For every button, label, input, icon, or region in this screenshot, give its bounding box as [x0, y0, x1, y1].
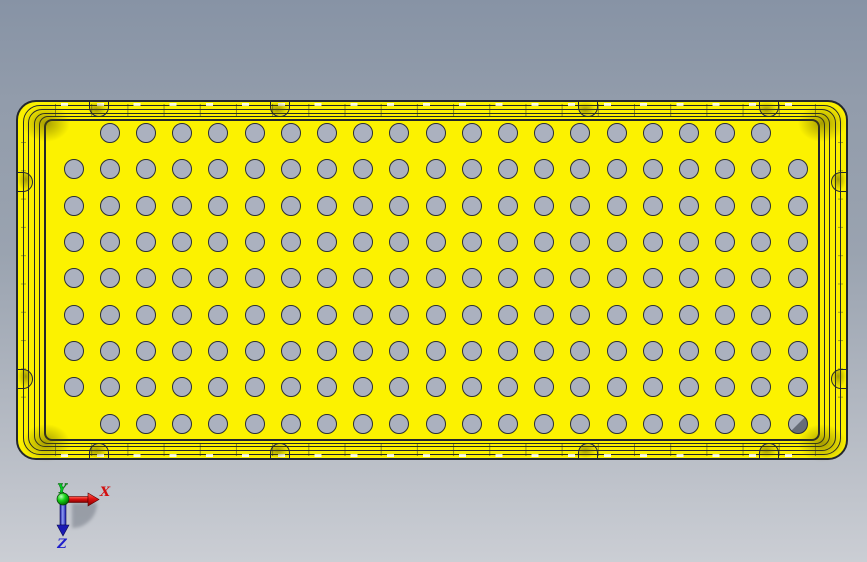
hole[interactable] [353, 414, 373, 434]
hole[interactable] [426, 341, 446, 361]
hole[interactable] [751, 196, 771, 216]
triad-z-label: Z [56, 537, 67, 552]
hole[interactable] [751, 414, 771, 434]
hole[interactable] [281, 196, 301, 216]
hole[interactable] [281, 268, 301, 288]
hole[interactable] [245, 414, 265, 434]
hole[interactable] [64, 268, 84, 288]
hole[interactable] [788, 377, 808, 397]
hole[interactable] [317, 123, 337, 143]
hole[interactable] [281, 341, 301, 361]
hole[interactable] [570, 196, 590, 216]
rim-notch-bottom [89, 443, 109, 458]
hole[interactable] [281, 123, 301, 143]
hole[interactable] [64, 196, 84, 216]
hole[interactable] [281, 232, 301, 252]
hole[interactable] [607, 232, 627, 252]
rim-notch-top [578, 102, 598, 117]
hole[interactable] [100, 414, 120, 434]
hole[interactable] [245, 196, 265, 216]
hole[interactable] [317, 305, 337, 325]
hole[interactable] [100, 196, 120, 216]
hole[interactable] [317, 414, 337, 434]
hole[interactable] [607, 159, 627, 179]
hole[interactable] [607, 268, 627, 288]
hole[interactable] [715, 196, 735, 216]
hole[interactable] [643, 414, 663, 434]
hole[interactable] [643, 268, 663, 288]
hole[interactable] [281, 159, 301, 179]
hole[interactable] [534, 232, 554, 252]
hole[interactable] [136, 196, 156, 216]
hole[interactable] [462, 414, 482, 434]
hole[interactable] [462, 123, 482, 143]
hole[interactable] [498, 196, 518, 216]
hole[interactable] [426, 268, 446, 288]
hole[interactable] [245, 377, 265, 397]
hole[interactable] [317, 196, 337, 216]
hole[interactable] [353, 123, 373, 143]
hole[interactable] [426, 159, 446, 179]
hole[interactable] [136, 232, 156, 252]
hole[interactable] [281, 305, 301, 325]
hole[interactable] [498, 305, 518, 325]
triad-x-label: X [99, 485, 111, 500]
hole[interactable] [245, 159, 265, 179]
hole[interactable] [607, 341, 627, 361]
hole[interactable] [715, 232, 735, 252]
hole[interactable] [643, 196, 663, 216]
hole[interactable] [607, 414, 627, 434]
hole[interactable] [64, 232, 84, 252]
hole[interactable] [498, 232, 518, 252]
hole[interactable] [679, 123, 699, 143]
hole[interactable] [172, 305, 192, 325]
hole[interactable] [100, 305, 120, 325]
hole[interactable] [679, 341, 699, 361]
hole[interactable] [172, 196, 192, 216]
hole[interactable] [100, 159, 120, 179]
hole[interactable] [426, 232, 446, 252]
hole[interactable] [643, 159, 663, 179]
rim-notch-top [89, 102, 109, 117]
triad-origin-ball [57, 493, 69, 505]
x-axis-arrow [67, 497, 88, 503]
hole[interactable] [426, 414, 446, 434]
hole[interactable] [462, 159, 482, 179]
hole[interactable] [136, 305, 156, 325]
z-axis-arrow [60, 504, 66, 525]
hole[interactable] [462, 268, 482, 288]
rim-highlight-bottom [48, 454, 816, 457]
hole[interactable] [679, 196, 699, 216]
hole[interactable] [643, 341, 663, 361]
hole[interactable] [317, 341, 337, 361]
hole[interactable] [317, 232, 337, 252]
hole[interactable] [570, 414, 590, 434]
hole[interactable] [607, 123, 627, 143]
rim-notch-right [831, 172, 846, 192]
hole[interactable] [389, 196, 409, 216]
hole[interactable] [534, 123, 554, 143]
hole[interactable] [788, 341, 808, 361]
hole[interactable] [426, 377, 446, 397]
hole[interactable] [715, 305, 735, 325]
hole[interactable] [100, 268, 120, 288]
hole[interactable] [788, 159, 808, 179]
hole[interactable] [498, 123, 518, 143]
hole[interactable] [100, 341, 120, 361]
hole[interactable] [788, 232, 808, 252]
hole[interactable] [788, 196, 808, 216]
hole[interactable] [607, 305, 627, 325]
hole[interactable] [245, 232, 265, 252]
keyed-hole[interactable] [788, 414, 808, 434]
rim-notch-bottom [759, 443, 779, 458]
hole[interactable] [136, 341, 156, 361]
hole[interactable] [534, 305, 554, 325]
hole[interactable] [679, 414, 699, 434]
rim-notch-bottom [270, 443, 290, 458]
hole[interactable] [208, 414, 228, 434]
hole[interactable] [462, 341, 482, 361]
hole[interactable] [64, 377, 84, 397]
hole[interactable] [245, 268, 265, 288]
rim-notch-left [18, 172, 33, 192]
hole[interactable] [498, 414, 518, 434]
hole[interactable] [426, 196, 446, 216]
hole[interactable] [208, 196, 228, 216]
hole[interactable] [353, 196, 373, 216]
orientation-triad: Y X Z [46, 476, 120, 552]
hole[interactable] [607, 196, 627, 216]
hole[interactable] [643, 232, 663, 252]
hole[interactable] [172, 414, 192, 434]
hole[interactable] [788, 305, 808, 325]
hole[interactable] [64, 341, 84, 361]
hole[interactable] [462, 232, 482, 252]
hole[interactable] [534, 196, 554, 216]
hole[interactable] [643, 123, 663, 143]
rim-notch-top [270, 102, 290, 117]
hole[interactable] [245, 123, 265, 143]
hole[interactable] [136, 414, 156, 434]
hole[interactable] [245, 305, 265, 325]
cad-viewport[interactable]: Y X Z [0, 0, 867, 562]
rim-tick-marks-bottom [48, 444, 816, 456]
hole[interactable] [751, 305, 771, 325]
rim-notch-left [18, 369, 33, 389]
z-axis-arrowhead [57, 525, 69, 536]
triad-shadow [72, 503, 97, 528]
hole[interactable] [643, 305, 663, 325]
hole[interactable] [208, 305, 228, 325]
hole[interactable] [570, 305, 590, 325]
hole[interactable] [679, 305, 699, 325]
hole[interactable] [534, 414, 554, 434]
hole[interactable] [353, 305, 373, 325]
hole[interactable] [498, 341, 518, 361]
hole[interactable] [64, 305, 84, 325]
hole[interactable] [245, 341, 265, 361]
hole[interactable] [389, 305, 409, 325]
hole[interactable] [172, 232, 192, 252]
hole[interactable] [715, 123, 735, 143]
rim-notch-bottom [578, 443, 598, 458]
hole[interactable] [353, 232, 373, 252]
hole[interactable] [426, 123, 446, 143]
part-plate[interactable] [16, 100, 848, 460]
hole[interactable] [426, 305, 446, 325]
rim-notch-top [759, 102, 779, 117]
hole[interactable] [788, 268, 808, 288]
hole[interactable] [172, 123, 192, 143]
hole[interactable] [389, 414, 409, 434]
hole[interactable] [100, 123, 120, 143]
hole[interactable] [462, 305, 482, 325]
hole[interactable] [607, 377, 627, 397]
rim-tick-marks-top [48, 104, 816, 116]
hole[interactable] [715, 414, 735, 434]
hole[interactable] [281, 414, 301, 434]
hole[interactable] [462, 196, 482, 216]
rim-highlight-top [48, 103, 816, 106]
hole[interactable] [64, 159, 84, 179]
hole[interactable] [679, 232, 699, 252]
rim-notch-right [831, 369, 846, 389]
hole[interactable] [100, 232, 120, 252]
hole[interactable] [136, 123, 156, 143]
